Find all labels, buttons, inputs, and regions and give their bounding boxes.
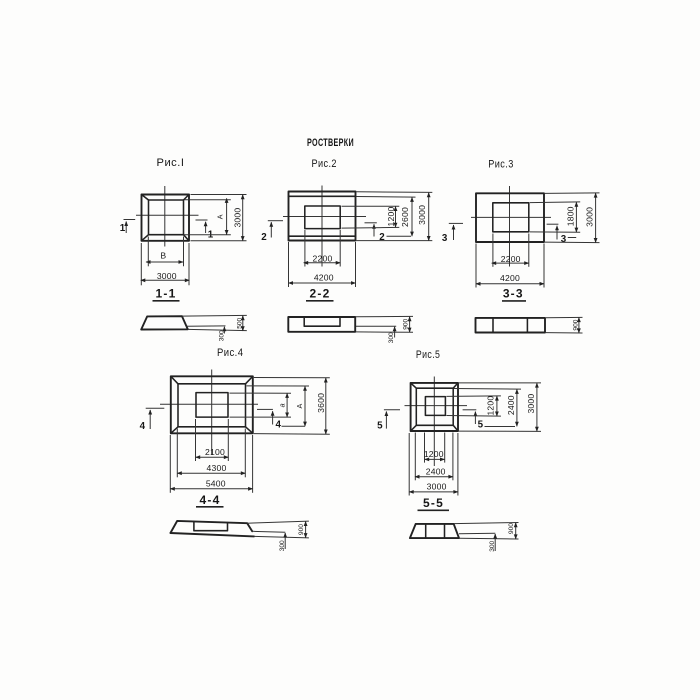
svg-text:2: 2 — [261, 232, 267, 243]
svg-text:3000: 3000 — [526, 394, 536, 414]
svg-text:2400: 2400 — [506, 395, 516, 415]
svg-text:2200: 2200 — [501, 254, 521, 264]
svg-text:5400: 5400 — [206, 478, 226, 488]
svg-text:300: 300 — [219, 330, 226, 341]
svg-text:4: 4 — [140, 421, 146, 432]
svg-text:3600: 3600 — [316, 393, 326, 413]
svg-text:2100: 2100 — [205, 447, 225, 457]
svg-text:А: А — [216, 214, 225, 219]
svg-text:1200: 1200 — [424, 449, 444, 459]
svg-text:5-5: 5-5 — [423, 496, 444, 510]
svg-text:5: 5 — [377, 420, 383, 431]
svg-text:2: 2 — [379, 232, 385, 243]
svg-text:3-3: 3-3 — [503, 287, 524, 301]
svg-text:3: 3 — [442, 233, 448, 244]
svg-text:1800: 1800 — [566, 206, 576, 226]
svg-text:4300: 4300 — [207, 463, 227, 473]
svg-text:1: 1 — [120, 223, 126, 234]
svg-text:4: 4 — [275, 420, 281, 431]
svg-text:РОСТВЕРКИ: РОСТВЕРКИ — [307, 137, 354, 149]
svg-text:1200: 1200 — [486, 396, 496, 416]
svg-text:Рис.5: Рис.5 — [416, 349, 441, 361]
svg-text:4200: 4200 — [314, 272, 334, 282]
svg-text:3000: 3000 — [417, 205, 427, 225]
svg-text:5: 5 — [478, 420, 484, 431]
svg-text:Рис.4: Рис.4 — [217, 347, 244, 359]
svg-text:300: 300 — [388, 332, 395, 343]
svg-text:900: 900 — [403, 318, 410, 329]
svg-text:А: А — [295, 403, 304, 408]
svg-text:4-4: 4-4 — [200, 493, 221, 507]
svg-text:900: 900 — [298, 524, 305, 535]
svg-text:300: 300 — [279, 540, 286, 551]
svg-text:3: 3 — [561, 234, 567, 245]
svg-text:900: 900 — [572, 319, 579, 330]
svg-text:3000: 3000 — [232, 208, 242, 228]
svg-text:а: а — [278, 403, 287, 407]
svg-text:300: 300 — [489, 540, 496, 551]
svg-text:2400: 2400 — [426, 466, 446, 476]
svg-text:Рис.I: Рис.I — [157, 157, 185, 169]
svg-text:Рис.3: Рис.3 — [488, 159, 514, 171]
svg-text:2-2: 2-2 — [310, 287, 331, 301]
svg-text:500: 500 — [237, 317, 244, 328]
svg-text:4200: 4200 — [500, 273, 520, 283]
svg-text:3000: 3000 — [427, 482, 447, 492]
svg-text:3000: 3000 — [585, 207, 595, 227]
svg-text:В: В — [160, 251, 166, 261]
svg-text:Рис.2: Рис.2 — [311, 158, 337, 170]
svg-text:1200: 1200 — [386, 207, 396, 227]
svg-text:1-1: 1-1 — [156, 287, 177, 301]
svg-text:900: 900 — [508, 523, 515, 534]
svg-text:2600: 2600 — [400, 207, 410, 227]
svg-text:2200: 2200 — [313, 254, 333, 264]
svg-text:3000: 3000 — [157, 271, 177, 281]
